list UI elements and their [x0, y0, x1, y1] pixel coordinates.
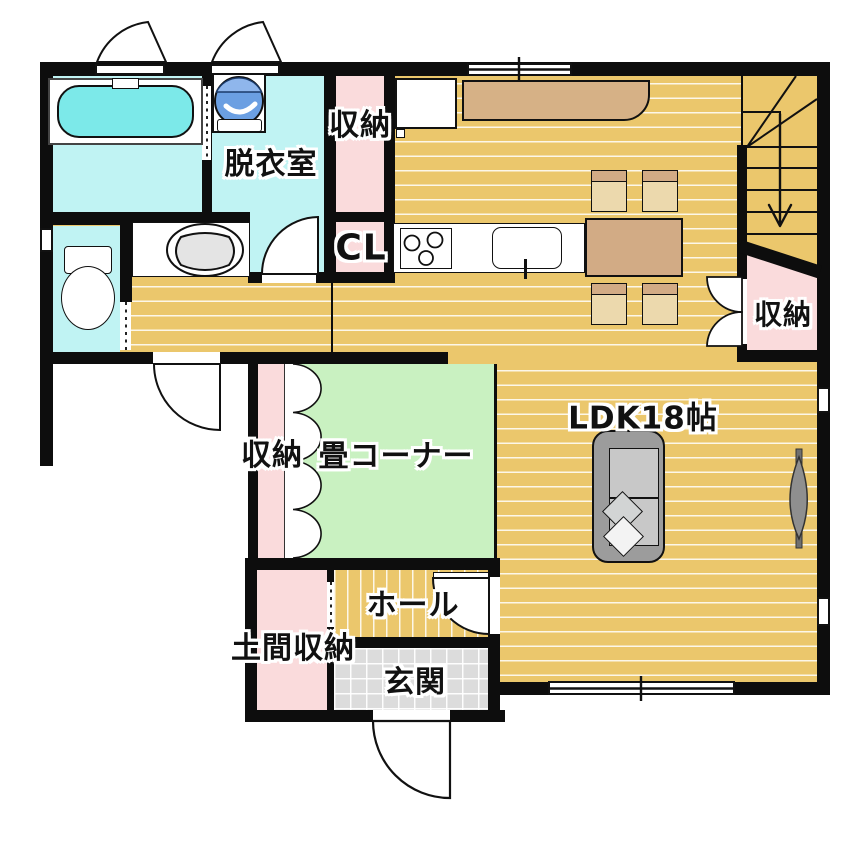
- chair-backrest: [643, 171, 677, 182]
- door-arc-corridor-exterior: [154, 364, 220, 430]
- stove: [400, 228, 452, 269]
- chair: [642, 170, 678, 212]
- kitchen-sink: [492, 227, 562, 269]
- wall-stairs-storage-south: [737, 350, 830, 362]
- label-storage-top: 収納: [329, 100, 391, 144]
- label-doma-storage: 土間収納: [231, 623, 355, 667]
- refrigerator-foot: [396, 129, 405, 138]
- tatami-edge-line: [494, 364, 497, 558]
- toilet-bowl: [61, 266, 115, 330]
- sliding-window-ldk-south: [548, 681, 735, 695]
- window-toilet: [40, 228, 53, 252]
- label-ldk: LDK18帖: [568, 393, 718, 438]
- awning-window-swing-icon: [212, 22, 281, 62]
- bathtub: [57, 85, 194, 138]
- wall-tatami-south: [248, 558, 497, 570]
- refrigerator: [395, 78, 457, 129]
- corridor-edge-line: [331, 283, 333, 352]
- wall-stairs-storage-jamb-top: [737, 266, 747, 280]
- sliding-door-doma-storage: [327, 582, 334, 627]
- label-stairs-storage: 収納: [754, 293, 812, 333]
- wall-corridor-south: [40, 352, 448, 364]
- washing-machine-tray: [217, 119, 262, 132]
- room-storage-top-floor: [336, 76, 384, 212]
- sliding-door-toilet: [120, 302, 131, 350]
- sliding-door-bathroom: [202, 86, 211, 160]
- chair: [642, 283, 678, 325]
- bathtub-handle: [112, 78, 139, 89]
- wall-hall-entrance-step: [334, 637, 488, 648]
- chair-backrest: [592, 284, 626, 295]
- kitchen-cabinet: [462, 80, 650, 121]
- awning-window-swing-icon: [97, 22, 166, 62]
- window-ldk-east-2: [817, 597, 830, 626]
- chair-backrest: [592, 171, 626, 182]
- label-tatami-corner: 畳コーナー: [319, 431, 474, 475]
- label-dressing-room: 脱衣室: [225, 139, 318, 183]
- awning-window-bathroom: [95, 64, 165, 75]
- door-gap-entrance: [373, 710, 450, 722]
- label-entrance: 玄関: [384, 657, 446, 701]
- floor-patch: [448, 352, 497, 364]
- label-tatami-storage: 収納: [241, 430, 303, 474]
- window-ldk-east-1: [817, 387, 830, 413]
- chair-backrest: [643, 284, 677, 295]
- dining-table: [585, 218, 683, 277]
- door-arc-entrance: [373, 721, 450, 798]
- door-gap-corridor-exterior: [153, 352, 220, 364]
- sliding-window-kitchen: [467, 63, 572, 76]
- floor-plan: 収納 脱衣室 CL 収納 LDK18帖 収納 畳コーナー ホール 土間収納 玄関: [0, 0, 867, 842]
- stairs-edge-line: [741, 76, 743, 146]
- label-hall: ホール: [367, 580, 460, 624]
- washbasin-counter: [132, 222, 250, 277]
- chair: [591, 283, 627, 325]
- chair: [591, 170, 627, 212]
- door-gap-hall: [488, 577, 500, 634]
- wall-toilet-east: [120, 225, 132, 302]
- stairs-floor: [742, 76, 818, 268]
- label-closet-cl: CL: [335, 228, 386, 269]
- door-gap-stairs-storage: [736, 279, 747, 344]
- door-gap-dressing: [262, 272, 316, 283]
